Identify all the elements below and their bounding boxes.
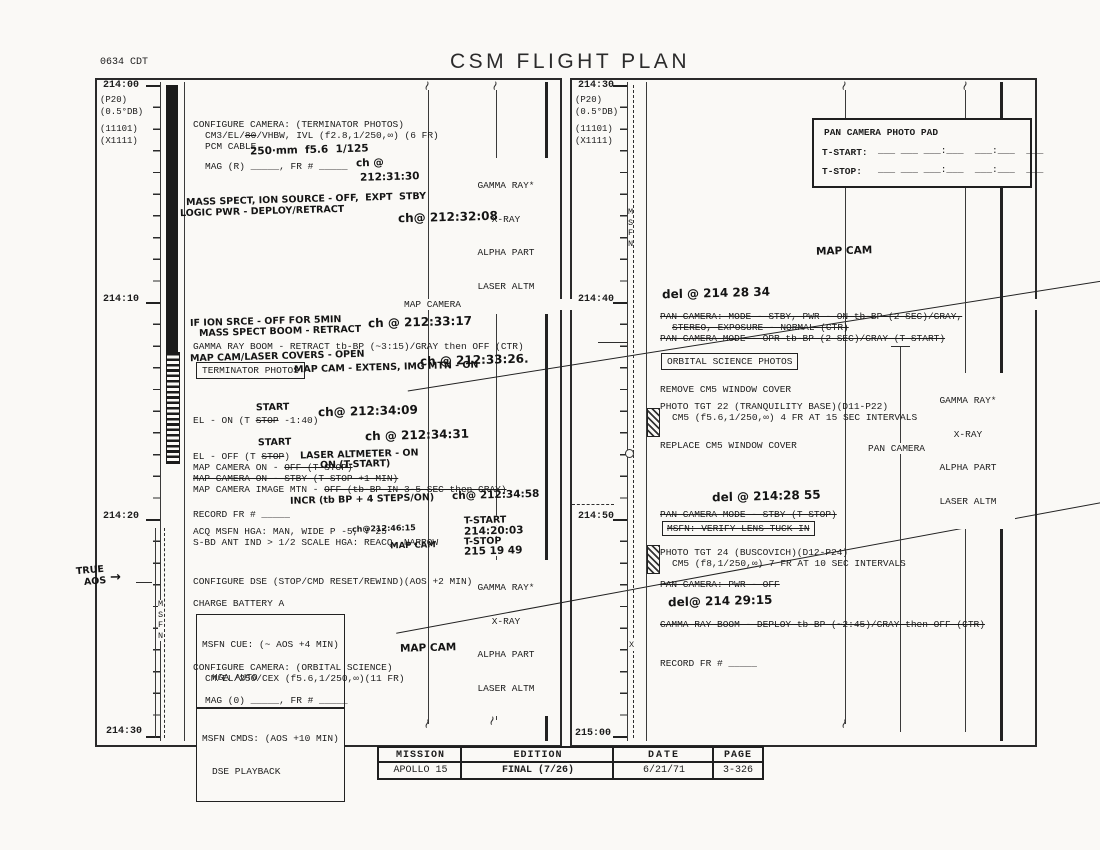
procedure-el-off: EL - OFF (T STOP) [193, 451, 290, 462]
procedure-record-fr-right: RECORD FR # _____ [660, 658, 757, 669]
left-time-21420: 214:20 [103, 511, 139, 522]
pan-camera-track-label: PAN CAMERA [868, 443, 925, 454]
msfn-bracket-line [155, 528, 156, 738]
handwritten-ch-7: ch@ 212:34:58 [452, 489, 540, 501]
handwritten-lens-settings: 250·mm f5.6 1/125 [250, 143, 369, 156]
left-major-tick-3 [146, 736, 160, 738]
left-param-db: (0.5°DB) [100, 107, 143, 118]
experiment-track-label-1: GAMMA RAY* X-RAY ALPHA PART LASER ALTM [459, 158, 553, 314]
right-major-tick-3 [613, 736, 627, 738]
terminator-photos-box: TERMINATOR PHOTOS [196, 362, 305, 379]
x-axis-mark: X [629, 640, 634, 651]
procedure-remove-cm5: REMOVE CM5 WINDOW COVER [660, 384, 791, 395]
handwritten-ch-3: ch @ 212:33:17 [368, 316, 472, 329]
procedure-configure-orbital: CONFIGURE CAMERA: (ORBITAL SCIENCE) [193, 662, 393, 673]
right-time-21440: 214:40 [578, 294, 614, 305]
right-msfn-vertical-label: M S F N [628, 208, 633, 249]
procedure-mag-r: MAG (R) _____, FR # _____ [205, 161, 348, 172]
handwritten-del-1: del @ 214 28 34 [662, 287, 770, 300]
attitude-bar-hatched [166, 352, 180, 464]
procedure-tgt-22-settings: CM5 (f5.6,1/250,∞) 4 FR AT 15 SEC INTERV… [672, 412, 917, 423]
clock-stamp: 0634 CDT [100, 57, 148, 68]
right-time-21500: 215:00 [575, 728, 611, 739]
struck-pan-camera-pwr-off: PAN CAMERA: PWR - OFF [660, 579, 780, 590]
procedure-acq-msfn-hga: ACQ MSFN HGA: MAN, WIDE P -5, Y 25 [193, 526, 387, 537]
procedure-record-fr: RECORD FR # _____ [193, 509, 290, 520]
right-param-11101: (11101) [575, 124, 613, 135]
page-title: CSM FLIGHT PLAN [420, 50, 720, 74]
right-timeline-ruler [627, 82, 628, 741]
handwritten-mapcam-2: MAP CAM [400, 642, 456, 653]
footer-mission-value: APOLLO 15 [377, 761, 464, 780]
right-major-tick-1 [613, 302, 627, 304]
right-time-21430: 214:30 [578, 80, 614, 91]
photo-pad-title: PAN CAMERA PHOTO PAD [824, 127, 938, 138]
handwritten-start-1: START [256, 403, 290, 414]
left-time-21430: 214:30 [106, 726, 142, 737]
right-param-x1111: (X1111) [575, 136, 613, 147]
photo-pad-tstart-blanks: ___ ___ ___:___ ___:___ ___ [878, 145, 1043, 156]
handwritten-tstop-value: 215 19 49 [464, 545, 523, 557]
photo-pad-tstop-label: T-STOP: [822, 166, 862, 177]
struck-gamma-boom-deploy: GAMMA RAY BOOM - DEPLOY tb-BP (~2:45)/GR… [660, 619, 985, 630]
handwritten-ch-6: ch @ 212:34:31 [365, 429, 469, 442]
orbital-science-photos-box: ORBITAL SCIENCE PHOTOS [661, 353, 798, 370]
struck-stereo-exposure: STEREO, EXPOSURE - NORMAL (CTR) [672, 322, 849, 333]
procedure-mag-0: MAG (0) _____, FR # _____ [205, 695, 348, 706]
photo-interval-hatch-1 [647, 408, 660, 437]
true-aos-arrow: → [110, 573, 121, 583]
timeline-circle-marker [625, 449, 634, 458]
procedure-pcm-cable: PCM CABLE [205, 141, 256, 152]
struck-verify-lens-box: MSFN: VERIFY LENS TUCK IN [662, 521, 815, 536]
right-param-db: (0.5°DB) [575, 107, 618, 118]
procedure-configure-terminator: CONFIGURE CAMERA: (TERMINATOR PHOTOS) [193, 119, 404, 130]
aos-marker-line [598, 342, 628, 343]
los-dashed-marker [572, 504, 614, 505]
right-major-tick-2 [613, 519, 627, 521]
procedure-replace-cm5: REPLACE CM5 WINDOW COVER [660, 440, 797, 451]
footer-page-value: 3-326 [712, 761, 764, 780]
struck-pan-camera-mode-1: PAN CAMERA: MODE - STBY, PWR - ON tb-BP … [660, 311, 962, 322]
experiment-track-label-2: GAMMA RAY* X-RAY ALPHA PART LASER ALTM [459, 560, 553, 716]
procedure-tgt-24-settings: CM5 (f8,1/250,∞) 7 FR AT 10 SEC INTERVAL… [672, 558, 906, 569]
left-param-x1111: (X1111) [100, 136, 138, 147]
left-time-21400: 214:00 [103, 80, 139, 91]
right-param-p20: (P20) [575, 95, 602, 106]
procedure-cm-el-250: CM/EL/250/CEX (f5.6,1/250,∞)(11 FR) [205, 673, 405, 684]
handwritten-on-tstart: ON (T-START) [320, 459, 391, 471]
photo-interval-hatch-2 [647, 545, 660, 574]
left-param-p20: (P20) [100, 95, 127, 106]
msfn-dashed-line [164, 528, 165, 738]
handwritten-del-3: del@ 214 29:15 [668, 595, 773, 608]
handwritten-del-2: del @ 214:28 55 [712, 490, 821, 503]
right-experiment-track-label: GAMMA RAY* X-RAY ALPHA PART LASER ALTM [921, 373, 1015, 529]
track-line-1 [428, 90, 429, 724]
procedure-camera-settings: CM3/EL/80/VHBW, IVL (f2.8,1/250,∞) (6 FR… [205, 130, 439, 141]
right-track2-cap [891, 346, 910, 347]
left-timeline-ruler [160, 82, 161, 741]
procedure-map-camera-stby-struck: MAP CAMERA ON - STBY (T STOP +1 MIN) [193, 473, 398, 484]
procedure-el-on: EL - ON (T STOP -1:40) [193, 415, 318, 426]
handwritten-ch-1: ch @ [356, 158, 384, 169]
left-param-11101: (11101) [100, 124, 138, 135]
procedure-photo-tgt-24: PHOTO TGT 24 (BUSCOVICH)(D12-P24) [660, 547, 848, 558]
handwritten-ch-2: ch@ 212:32:08 [398, 211, 498, 224]
right-time-21450: 214:50 [578, 511, 614, 522]
right-major-tick-0 [613, 85, 627, 87]
true-aos-note-2: AOS [84, 576, 107, 588]
msfn-cmds-box: MSFN CMDS: (AOS +10 MIN) DSE PLAYBACK [196, 708, 345, 802]
procedure-charge-battery: CHARGE BATTERY A [193, 598, 284, 609]
procedure-photo-tgt-22: PHOTO TGT 22 (TRANQUILITY BASE)(D11-P22) [660, 401, 888, 412]
true-aos-pointer-line [136, 582, 152, 583]
flight-plan-scan: 0634 CDT CSM FLIGHT PLAN 214:00 214:10 2… [0, 0, 1100, 850]
handwritten-start-2: START [258, 438, 292, 449]
procedure-sband-ant: S-BD ANT IND > 1/2 SCALE HGA: REACQ, NAR… [193, 537, 438, 548]
footer-edition-value: FINAL (7/26) [460, 761, 616, 780]
attitude-bar-solid [166, 85, 178, 352]
photo-pad-tstart-label: T-START: [822, 147, 868, 158]
procedure-configure-dse: CONFIGURE DSE (STOP/CMD RESET/REWIND)(AO… [193, 576, 472, 587]
msfn-vertical-label: M S F N [158, 600, 163, 641]
left-time-21410: 214:10 [103, 294, 139, 305]
map-camera-track-label: MAP CAMERA [404, 299, 1100, 310]
photo-pad-tstop-blanks: ___ ___ ___:___ ___:___ ___ [878, 164, 1043, 175]
msfn-cue-box: MSFN CUE: (~ AOS +4 MIN) HGA AUTO [196, 614, 345, 708]
handwritten-mapcam-right: MAP CAM [816, 245, 872, 256]
footer-date-value: 6/21/71 [612, 761, 716, 780]
left-major-tick-2 [146, 519, 160, 521]
left-major-tick-0 [146, 85, 160, 87]
struck-pan-camera-opr: PAN CAMERA MODE - OPR tb-BP (2 SEC)/GRAY… [660, 333, 945, 344]
left-content-divider [184, 82, 185, 741]
handwritten-ch-5: ch@ 212:34:09 [318, 405, 418, 418]
handwritten-time-1: 212:31:30 [360, 171, 420, 183]
struck-pan-camera-stby: PAN CAMERA MODE - STBY (T STOP) [660, 509, 837, 520]
right-track-line-2 [900, 347, 901, 732]
right-minor-ticks [620, 85, 627, 738]
left-major-tick-1 [146, 302, 160, 304]
